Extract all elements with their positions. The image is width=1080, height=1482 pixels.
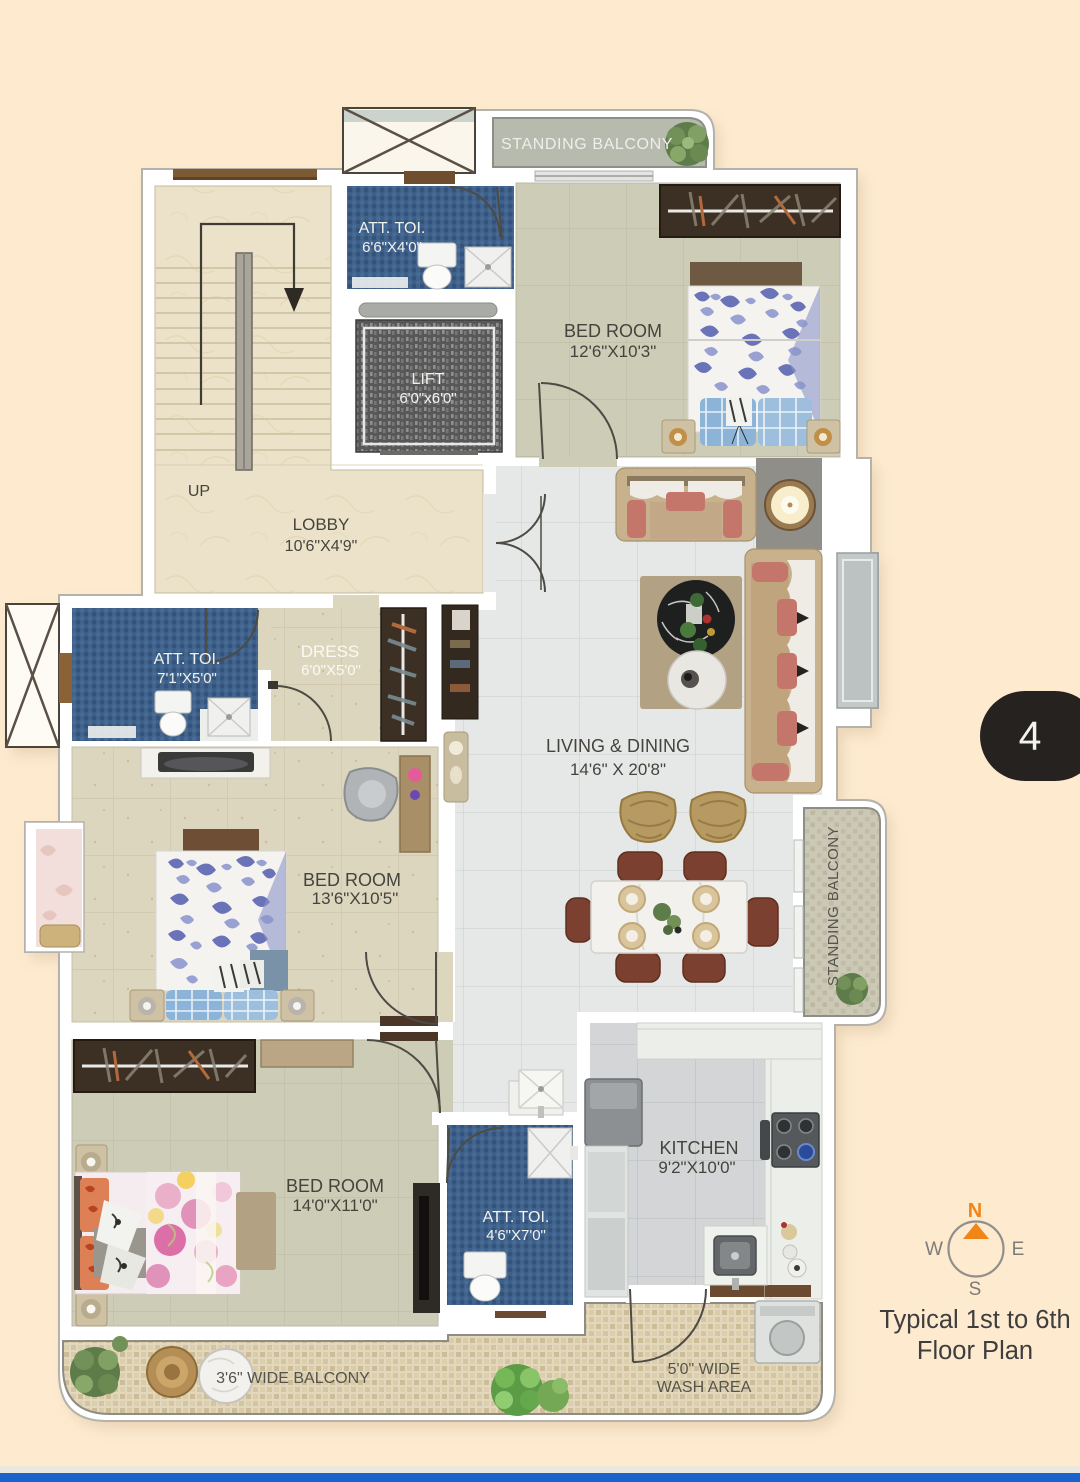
svg-text:14'0"X11'0": 14'0"X11'0" [292,1196,377,1215]
svg-text:S: S [969,1279,982,1300]
svg-text:BED ROOM: BED ROOM [286,1176,384,1196]
svg-text:KITCHEN: KITCHEN [659,1138,738,1158]
svg-text:6'6"X4'0": 6'6"X4'0" [362,239,422,256]
svg-text:DRESS: DRESS [301,642,360,661]
svg-text:LOBBY: LOBBY [293,515,350,534]
svg-text:3'6" WIDE BALCONY: 3'6" WIDE BALCONY [216,1370,370,1387]
svg-text:ATT. TOI.: ATT. TOI. [359,220,426,237]
svg-text:4: 4 [1019,713,1042,759]
svg-text:Typical 1st to 6th: Typical 1st to 6th [879,1306,1070,1334]
svg-text:LIVING & DINING: LIVING & DINING [546,736,690,756]
svg-text:UP: UP [188,483,210,500]
svg-text:Floor Plan: Floor Plan [917,1337,1033,1365]
svg-text:LIFT: LIFT [412,371,445,388]
svg-text:BED ROOM: BED ROOM [303,870,401,890]
svg-text:W: W [925,1239,943,1260]
svg-text:13'6"X10'5": 13'6"X10'5" [312,889,399,908]
svg-text:WASH AREA: WASH AREA [657,1379,752,1396]
svg-text:ATT. TOI.: ATT. TOI. [154,651,221,668]
svg-text:14'6" X 20'8": 14'6" X 20'8" [570,760,666,779]
svg-text:4'6"X7'0": 4'6"X7'0" [486,1227,546,1244]
svg-text:ATT. TOI.: ATT. TOI. [483,1209,550,1226]
svg-text:12'6"X10'3": 12'6"X10'3" [570,342,657,361]
svg-text:10'6"X4'9": 10'6"X4'9" [285,538,358,555]
svg-text:STANDING BALCONY: STANDING BALCONY [501,136,673,153]
svg-text:BED ROOM: BED ROOM [564,321,662,341]
svg-text:N: N [968,1200,982,1222]
svg-text:7'1"X5'0": 7'1"X5'0" [157,670,217,687]
svg-text:6'0"x6'0": 6'0"x6'0" [399,390,456,407]
svg-text:9'2"X10'0": 9'2"X10'0" [658,1158,735,1177]
svg-text:5'0" WIDE: 5'0" WIDE [668,1361,741,1378]
svg-text:6'0"X5'0": 6'0"X5'0" [301,662,361,679]
svg-text:E: E [1012,1239,1025,1260]
svg-text:STANDING BALCONY: STANDING BALCONY [825,826,842,986]
